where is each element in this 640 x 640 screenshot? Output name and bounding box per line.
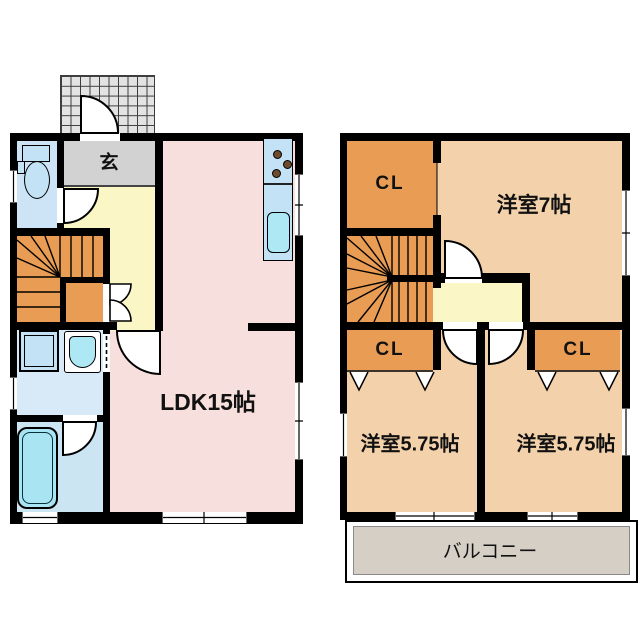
wall-segment [477, 330, 485, 512]
label-genkan: 玄 [99, 148, 118, 175]
label-balcony: バルコニー [443, 537, 538, 564]
label-room-left: 洋室5.75帖 [361, 428, 460, 457]
door-gap-toilet [57, 188, 64, 223]
wall-segment [10, 322, 117, 330]
wall-segment [10, 228, 110, 236]
wall-segment [60, 277, 66, 322]
label-ldk: LDK15帖 [160, 383, 256, 417]
stair-landing-bar [387, 275, 433, 282]
door-gap-room-left [443, 322, 477, 330]
room-hall-2f [441, 283, 522, 322]
wall-segment [155, 133, 163, 331]
vanity-sink-icon [64, 331, 101, 373]
wall-segment [340, 133, 630, 141]
kitchen-counter [263, 138, 293, 261]
toilet-bowl-icon [24, 161, 50, 199]
label-room7: 洋室7帖 [497, 189, 572, 219]
room-ldk-lower [107, 331, 303, 512]
washing-machine-icon [19, 330, 59, 372]
door-gap-room7 [445, 273, 482, 283]
door-gap-entrance [80, 133, 120, 141]
door-gap-room-right [489, 322, 523, 330]
genkan-step-line [64, 185, 155, 187]
bathtub-icon [17, 427, 58, 509]
stove-burner-icon [283, 160, 292, 169]
label-room-right: 洋室5.75帖 [517, 428, 616, 457]
wall-segment [522, 322, 630, 330]
wall-segment [248, 323, 303, 331]
toilet-tank-icon [22, 145, 50, 162]
wall-segment [433, 228, 441, 288]
wall-segment [527, 330, 535, 370]
wall-segment [340, 512, 630, 520]
door-gap-under-stair-closet [103, 284, 110, 322]
wall-segment [340, 228, 441, 236]
entrance-porch-tiles [60, 75, 155, 134]
wall-segment [60, 277, 103, 283]
door-gap-washroom [103, 334, 110, 372]
floor-plan-canvas: 玄 LDK15帖 CL 洋室7帖 CL CL 洋室5.75帖 洋室5.75帖 バ… [0, 0, 640, 640]
wall-segment [10, 512, 303, 524]
kitchen-sink-icon [267, 212, 290, 253]
closet-top-opening [437, 163, 441, 215]
wall-segment [477, 322, 489, 330]
wall-segment [340, 322, 443, 330]
counter-divider [264, 183, 292, 185]
door-gap-bathroom [63, 415, 97, 422]
label-closet-top: CL [375, 173, 404, 195]
stair-entry-gap [433, 288, 441, 322]
stove-burner-icon [272, 169, 281, 178]
label-closet-left: CL [375, 339, 404, 361]
stove-burner-icon [273, 150, 282, 159]
label-closet-right: CL [563, 339, 592, 361]
toilet-flush-icon [17, 161, 25, 174]
wall-segment [433, 322, 441, 370]
